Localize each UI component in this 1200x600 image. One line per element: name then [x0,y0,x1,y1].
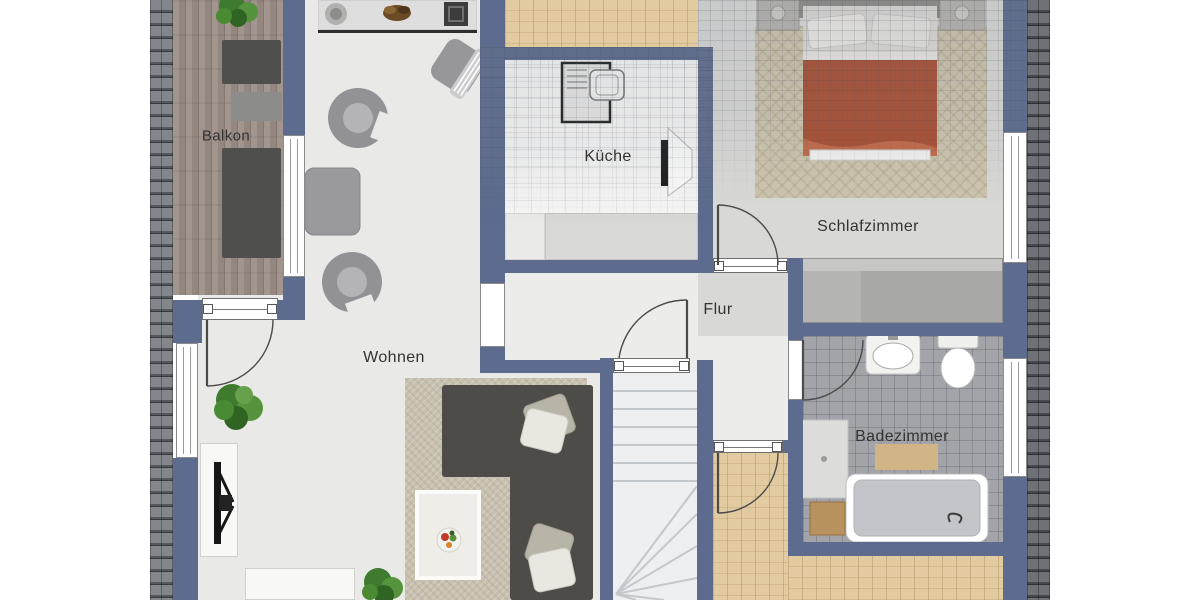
room-label-wohnen: Wohnen [363,350,425,366]
balcony-mat [231,92,282,121]
door-opening [788,340,803,400]
sideboard [318,0,477,30]
room-label-kueche: Küche [584,149,631,165]
door-jamb [267,304,277,314]
room-label-schlafzimmer: Schlafzimmer [817,219,919,235]
wall [1003,263,1027,358]
door-jamb [714,261,724,271]
floor-plan: Balkon Wohnen Küche Flur Schlafzimmer Ba… [0,0,1200,600]
balcony-bench [222,40,281,84]
door-frame-balcony [202,298,278,320]
door-frame-stairs [613,358,690,373]
wall [283,0,305,135]
storage-roof-floor-west [713,453,788,600]
window [1003,132,1027,263]
room-label-flur: Flur [703,302,732,318]
tv-lowboard [200,443,238,557]
room-label-badezimmer: Badezimmer [855,429,949,445]
wall [788,542,1027,556]
roof-overlay-kitchen [480,47,713,227]
wall [278,300,305,320]
door-frame-storage [713,440,783,453]
lowboard-bottom [245,568,355,600]
wall [788,400,803,542]
wall [788,258,803,340]
wall-opening [480,283,505,347]
roof-shingles-right [1027,0,1050,600]
sofa-back [442,385,593,477]
door-jamb [679,361,689,371]
wall [600,358,613,600]
wall [697,360,713,600]
storage-roof-floor-south [788,556,1027,600]
wall [783,440,788,453]
door-frame-bedroom [713,258,788,273]
wardrobe-top-edge [801,259,1002,271]
door-jamb [614,361,624,371]
staircase [613,373,697,600]
door-jamb [714,442,724,452]
roof-overlay-bedroom [698,0,1027,205]
room-label-balkon: Balkon [202,129,250,144]
balcony-lounger [222,148,281,258]
wall [173,458,198,600]
window [176,343,198,458]
wall [173,300,202,343]
sideboard-front-edge [318,30,477,33]
window [283,135,305,277]
roof-slope-above-kitchen [505,0,698,47]
wall [480,260,713,273]
wall [480,360,602,373]
wall [1003,477,1027,600]
window [1003,358,1027,477]
roof-shingles-left [150,0,173,600]
door-jamb [203,304,213,314]
wardrobe [800,258,1003,323]
door-jamb [777,261,787,271]
wall [803,323,1003,336]
door-jamb [772,442,782,452]
